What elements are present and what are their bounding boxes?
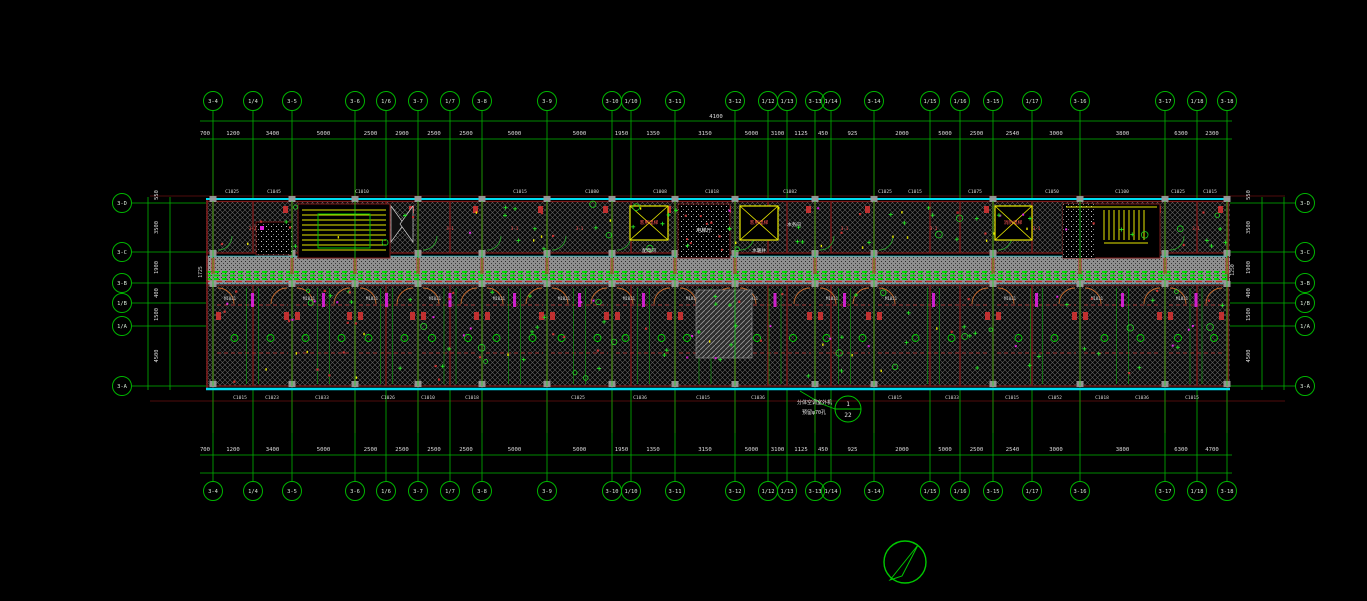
dimension-text: 6300: [1174, 447, 1187, 453]
dimension-text: 400: [154, 288, 160, 298]
shaft-marker: [1195, 293, 1198, 307]
equipment-block: [550, 312, 555, 320]
hall-dot: [700, 215, 702, 217]
axis-bubble-label: 1/18: [1191, 489, 1204, 495]
axis-bubble-label: 1/17: [1026, 489, 1039, 495]
axis-bubble-label: 1/14: [825, 489, 838, 495]
red-mark: [645, 328, 647, 330]
red-mark: [435, 365, 437, 367]
red-mark: [1128, 372, 1130, 374]
red-mark: [349, 291, 351, 293]
door-tag: M1021: [1176, 296, 1189, 301]
wall-tag: C1036: [751, 395, 765, 401]
axis-bubble-label: 1/A: [117, 324, 127, 330]
equipment-block: [1218, 206, 1223, 213]
dimension-text: 2000: [895, 131, 908, 137]
dimension-text: 2900: [395, 131, 408, 137]
dimension-text: 2500: [364, 447, 377, 453]
magenta-mark: [829, 338, 831, 340]
equipment-block: [1083, 312, 1088, 320]
magenta-mark: [336, 301, 338, 303]
wall-tag: C1015: [1185, 395, 1199, 401]
dimension-text: 1350: [646, 131, 659, 137]
cad-drawing-stage: 3-412001/434003-550003-625001/629003-725…: [0, 0, 1367, 601]
wall-tag: C1018: [705, 189, 719, 195]
equipment-block: [984, 206, 989, 213]
equipment-block: [603, 206, 608, 213]
axis-bubble-label: 1/4: [248, 99, 258, 105]
wall-tag: C1015: [233, 395, 247, 401]
red-mark: [452, 292, 454, 294]
axis-bubble-label: 3-18: [1221, 99, 1234, 105]
equipment-block: [1072, 312, 1077, 320]
door-tag: M1021: [826, 296, 839, 301]
magenta-mark: [463, 334, 465, 336]
magenta-mark: [592, 300, 594, 302]
dimension-text: 2500: [459, 131, 472, 137]
dimension-text: 700: [200, 447, 210, 453]
red-mark: [552, 333, 554, 335]
magenta-mark: [470, 327, 472, 329]
yellow-mark: [822, 343, 823, 345]
axis-bubble-label: 1/6: [381, 99, 391, 105]
equipment-block: [283, 206, 288, 213]
red-mark: [448, 298, 450, 300]
equipment-block: [358, 312, 363, 320]
dimension-text: 2540: [1006, 447, 1019, 453]
yellow-mark: [476, 211, 477, 213]
wall-tag: C1036: [633, 395, 647, 401]
north-arrow-icon: [884, 541, 926, 583]
dimension-text: 550: [1246, 190, 1252, 200]
dimension-text: 3000: [1049, 131, 1062, 137]
magenta-mark: [817, 207, 819, 209]
yellow-mark: [892, 236, 893, 238]
equipment-block: [818, 312, 823, 320]
equipment-block: [1157, 312, 1162, 320]
dimension-text: 6300: [1174, 131, 1187, 137]
detail-ref-label: 3-1: [576, 226, 584, 231]
red-mark: [984, 232, 986, 234]
red-mark: [223, 311, 225, 313]
dimension-text: 5000: [317, 447, 330, 453]
axis-bubble-label: 3-14: [868, 99, 881, 105]
equipment-block: [1219, 312, 1224, 320]
equipment-block: [216, 312, 221, 320]
dimension-text: 1125: [794, 131, 807, 137]
red-mark: [718, 235, 720, 237]
dimension-text: 2000: [895, 447, 908, 453]
wall-tag: C1025: [571, 395, 585, 401]
north-arrow-needle: [890, 545, 918, 580]
magenta-mark: [432, 316, 434, 318]
dimension-text: 2500: [459, 447, 472, 453]
axis-bubble-label: 1/16: [954, 99, 967, 105]
axis-bubble-label: 3-10: [606, 99, 619, 105]
shaft-marker: [385, 293, 388, 307]
dimension-text: 1200: [226, 447, 239, 453]
hall-dot: [721, 249, 723, 251]
axis-bubble-label: 3-10: [606, 489, 619, 495]
callout-note: 分体空调室外机: [797, 399, 832, 406]
axis-bubble-label: 3-5: [287, 489, 297, 495]
equipment-block: [421, 312, 426, 320]
red-mark: [781, 293, 783, 295]
side-dimension-note: 1250: [1230, 264, 1236, 276]
axis-bubble-label: 1/4: [248, 489, 258, 495]
wall-tag: C1015: [908, 189, 922, 195]
wall-tag: C1010: [421, 395, 435, 401]
red-mark: [541, 212, 543, 214]
red-mark: [316, 369, 318, 371]
red-mark: [438, 378, 440, 380]
red-mark: [412, 216, 414, 218]
axis-bubble-label: 3-11: [669, 489, 682, 495]
equipment-block: [678, 312, 683, 320]
yellow-mark: [1026, 228, 1027, 230]
wall-tag: C1018: [1095, 395, 1109, 401]
dimension-text-total: 4100: [709, 114, 722, 120]
red-mark: [840, 232, 842, 234]
wall-tag: C1023: [265, 395, 279, 401]
red-mark: [479, 356, 481, 358]
dimension-text: 3500: [1246, 221, 1252, 234]
callout-sheet: 22: [844, 412, 852, 419]
wall-tag: C1045: [267, 189, 281, 195]
detail-callout: 122分体空调室外机预留φ70孔: [797, 391, 861, 422]
dimension-text: 925: [847, 131, 857, 137]
yellow-mark: [778, 207, 779, 209]
axis-bubble-label: 1/18: [1191, 99, 1204, 105]
dimension-text: 5000: [573, 447, 586, 453]
yellow-mark: [993, 232, 994, 234]
red-mark: [859, 213, 861, 215]
wall-tag: C1015: [1005, 395, 1019, 401]
dimension-text: 1200: [226, 131, 239, 137]
magenta-mark: [291, 319, 293, 321]
door-tag: M1021: [623, 296, 636, 301]
stair-east: [1063, 204, 1160, 258]
red-mark: [221, 243, 223, 245]
wall-tag: C1008: [653, 189, 667, 195]
yellow-mark: [356, 376, 357, 378]
axis-bubble-label: 1/16: [954, 489, 967, 495]
room-label: 水务间: [787, 221, 801, 228]
equipment-block: [539, 312, 544, 320]
axis-bubble-label: 3-8: [477, 489, 487, 495]
axis-bubble-label: 3-7: [413, 489, 423, 495]
axis-grid-right: 3-D35003-C19003-B4001/B15001/A45003-A550: [1230, 190, 1315, 395]
wall-tag: C1033: [315, 395, 329, 401]
axis-bubble-label: 3-15: [987, 99, 1000, 105]
hall-dot: [685, 215, 687, 217]
magenta-mark: [1022, 214, 1024, 216]
axis-bubble-label: 3-B: [117, 281, 127, 287]
axis-bubble-label: 3-6: [350, 99, 360, 105]
detail-ref-label: 3-1: [249, 226, 257, 231]
magenta-mark: [314, 300, 316, 302]
dimension-text: 2540: [1006, 131, 1019, 137]
axis-bubble-label: 3-4: [208, 489, 218, 495]
axis-bubble-label: 3-7: [413, 99, 423, 105]
red-mark: [324, 290, 326, 292]
red-mark: [260, 221, 262, 223]
service-marker: [260, 226, 264, 230]
yellow-mark: [307, 351, 308, 353]
axis-bubble-label: 1/12: [762, 99, 775, 105]
room-label: 电梯厅: [696, 226, 712, 234]
red-mark: [289, 226, 291, 228]
red-mark: [1091, 298, 1093, 300]
wall-tag: C1026: [381, 395, 395, 401]
axis-bubble-label: 3-D: [1300, 201, 1310, 207]
equipment-block: [996, 312, 1001, 320]
shaft-marker: [513, 293, 516, 307]
wall-tag: C1015: [888, 395, 902, 401]
dimension-text: 1950: [615, 131, 628, 137]
red-mark: [288, 320, 290, 322]
detail-ref-label: 3-1: [930, 226, 938, 231]
yellow-mark: [541, 235, 542, 237]
dimension-text: 5000: [573, 131, 586, 137]
axis-bubble-label: 3-15: [987, 489, 1000, 495]
callout-number: 1: [846, 401, 850, 408]
equipment-block: [474, 312, 479, 320]
axis-bubble-label: 3-B: [1300, 281, 1310, 287]
magenta-mark: [1015, 345, 1017, 347]
wall-tag: C1015: [696, 395, 710, 401]
shaft-marker: [774, 293, 777, 307]
wall-tag: C1015: [1203, 189, 1217, 195]
door-tag: M1021: [885, 296, 898, 301]
yellow-mark: [901, 211, 902, 213]
detail-ref-label: 3-1: [446, 226, 454, 231]
magenta-mark: [1188, 329, 1190, 331]
dimension-text: 4500: [1246, 350, 1252, 363]
yellow-mark: [338, 236, 339, 238]
axis-bubble-label: 3-11: [669, 99, 682, 105]
room-label: 配电间: [642, 247, 656, 254]
red-mark: [710, 222, 712, 224]
equipment-block: [1168, 312, 1173, 320]
red-mark: [343, 351, 345, 353]
dimension-text: 3100: [771, 447, 784, 453]
axis-bubble-label: 3-6: [350, 489, 360, 495]
dimension-text: 4500: [154, 350, 160, 363]
axis-bubble-label: 1/7: [445, 489, 455, 495]
yellow-mark: [363, 333, 364, 335]
yellow-mark: [881, 370, 882, 372]
wall-tag: C1025: [1171, 189, 1185, 195]
axis-bubble-label: 1/17: [1026, 99, 1039, 105]
magenta-mark: [769, 325, 771, 327]
wall-tag: C1033: [945, 395, 959, 401]
axis-bubble-label: 1/10: [625, 489, 638, 495]
axis-bubble-label: 3-9: [542, 99, 552, 105]
magenta-mark: [1172, 345, 1174, 347]
door-tag: M1021: [1004, 296, 1017, 301]
dimension-text: 550: [154, 190, 160, 200]
dimension-text: 5000: [745, 447, 758, 453]
door-tag: M1021: [429, 296, 442, 301]
dimension-text: 5000: [317, 131, 330, 137]
hall-dot: [686, 238, 688, 240]
dimension-text: 925: [847, 447, 857, 453]
shaft-marker: [932, 293, 935, 307]
axis-bubble-label: 3-13: [809, 99, 822, 105]
wall-tag: C1015: [513, 189, 527, 195]
yellow-mark: [709, 340, 710, 342]
detail-ref-label: 3-1: [511, 226, 519, 231]
stair-west: [298, 204, 390, 258]
magenta-mark: [1192, 325, 1194, 327]
magenta-mark: [1056, 296, 1058, 298]
equipment-block: [485, 312, 490, 320]
axis-bubble-label: 3-14: [868, 489, 881, 495]
dimension-text: 1350: [646, 447, 659, 453]
magenta-mark: [226, 303, 228, 305]
axis-bubble-label: 1/12: [762, 489, 775, 495]
yellow-mark: [265, 368, 266, 370]
axis-bubble-label: 1/13: [781, 489, 794, 495]
dimension-text: 1900: [154, 261, 160, 274]
red-mark: [563, 336, 565, 338]
dimension-text: 3400: [266, 447, 279, 453]
axis-bubble-label: 1/B: [1300, 301, 1310, 307]
axis-bubble-label: 1/6: [381, 489, 391, 495]
dimension-text: 1500: [154, 308, 160, 321]
dimension-text: 5000: [745, 131, 758, 137]
shaft-marker: [322, 293, 325, 307]
red-mark: [235, 290, 237, 292]
dimension-text: 3500: [154, 221, 160, 234]
magenta-mark: [686, 356, 688, 358]
red-mark: [1202, 211, 1204, 213]
wall-tag: C1052: [1048, 395, 1062, 401]
dimension-text: 2500: [427, 131, 440, 137]
room-label: 消防电梯: [1004, 219, 1023, 226]
equipment-block: [806, 206, 811, 213]
axis-bubble-label: 1/10: [625, 99, 638, 105]
dimension-text: 3100: [771, 131, 784, 137]
callout-note: 预留φ70孔: [802, 409, 826, 416]
axis-bubble-label: 3-4: [208, 99, 218, 105]
door-tag: M1021: [493, 296, 506, 301]
detail-ref-label: 3-1: [1192, 226, 1200, 231]
red-mark: [760, 340, 762, 342]
magenta-mark: [691, 335, 693, 337]
axis-bubble-label: 3-8: [477, 99, 487, 105]
dimension-text: 2500: [395, 447, 408, 453]
magenta-mark: [580, 301, 582, 303]
yellow-mark: [821, 245, 822, 247]
axis-bubble-label: 3-17: [1159, 99, 1172, 105]
dimension-text: 2500: [364, 131, 377, 137]
yellow-mark: [986, 240, 987, 242]
dimension-text: 2500: [427, 447, 440, 453]
yellow-mark: [640, 207, 641, 209]
shaft-marker: [1121, 293, 1124, 307]
axis-bubble-label: 3-D: [117, 201, 127, 207]
dimension-text: 1900: [1246, 261, 1252, 274]
red-mark: [355, 322, 357, 324]
shaft-marker: [578, 293, 581, 307]
axis-bubble-label: 1/A: [1300, 324, 1310, 330]
yellow-mark: [610, 219, 611, 221]
shaft-marker: [843, 293, 846, 307]
dimension-text: 2500: [970, 447, 983, 453]
axis-bubble-label: 1/13: [781, 99, 794, 105]
lobby-void: [696, 290, 752, 358]
door-tag: M1021: [303, 296, 316, 301]
magenta-mark: [469, 232, 471, 234]
stair-service: [1063, 204, 1095, 258]
axis-bubble-label: 3-C: [1300, 250, 1310, 256]
yellow-mark: [862, 246, 863, 248]
equipment-block: [866, 312, 871, 320]
axis-bubble-label: 3-9: [542, 489, 552, 495]
axis-bubble-label: 3-A: [117, 384, 127, 390]
dimension-text: 3800: [1116, 131, 1129, 137]
dimension-text: 5000: [938, 447, 951, 453]
axis-bubble-label: 1/B: [117, 301, 127, 307]
red-mark: [968, 298, 970, 300]
red-mark: [597, 349, 599, 351]
red-mark: [1183, 244, 1185, 246]
equipment-block: [877, 312, 882, 320]
dimension-text: 3000: [1049, 447, 1062, 453]
axis-bubble-label: 1/14: [825, 99, 838, 105]
equipment-block: [410, 312, 415, 320]
wall-tag: C1050: [1045, 189, 1059, 195]
red-mark: [956, 211, 958, 213]
dimension-text: 450: [818, 131, 828, 137]
equipment-block: [604, 312, 609, 320]
axis-bubble-label: 3-16: [1074, 489, 1087, 495]
dimension-text: 700: [200, 131, 210, 137]
yellow-mark: [247, 243, 248, 245]
axis-bubble-label: 3-A: [1300, 384, 1310, 390]
door-tag: M1021: [366, 296, 379, 301]
room-label: 客用电梯: [750, 219, 769, 226]
axis-bubble-label: 1/15: [924, 489, 937, 495]
axis-bubble-label: 3-16: [1074, 99, 1087, 105]
yellow-mark: [907, 236, 908, 238]
red-mark: [1093, 222, 1095, 224]
axis-grid-left: 3-D35003-C19003-B4001/B15001/A45003-A550: [113, 190, 207, 395]
dimension-text: 1500: [1246, 308, 1252, 321]
dimension-text: 3400: [266, 131, 279, 137]
shaft-marker: [642, 293, 645, 307]
shaft-marker: [251, 293, 254, 307]
equipment-block: [347, 312, 352, 320]
magenta-mark: [868, 345, 870, 347]
wall-tag: C1025: [878, 189, 892, 195]
shaft-marker: [1035, 293, 1038, 307]
red-mark: [552, 235, 554, 237]
dimension-text: 5000: [508, 447, 521, 453]
dimension-text: 2500: [970, 131, 983, 137]
equipment-block: [538, 206, 543, 213]
yellow-mark: [533, 239, 534, 241]
equipment-block: [473, 206, 478, 213]
detail-ref-label: 3-1: [841, 226, 849, 231]
wall-tag: C1036: [1135, 395, 1149, 401]
floor-plan-canvas: 3-412001/434003-550003-625001/629003-725…: [0, 0, 1367, 601]
axis-bubble-label: 3-5: [287, 99, 297, 105]
red-mark: [738, 301, 740, 303]
hall-dot: [690, 242, 692, 244]
